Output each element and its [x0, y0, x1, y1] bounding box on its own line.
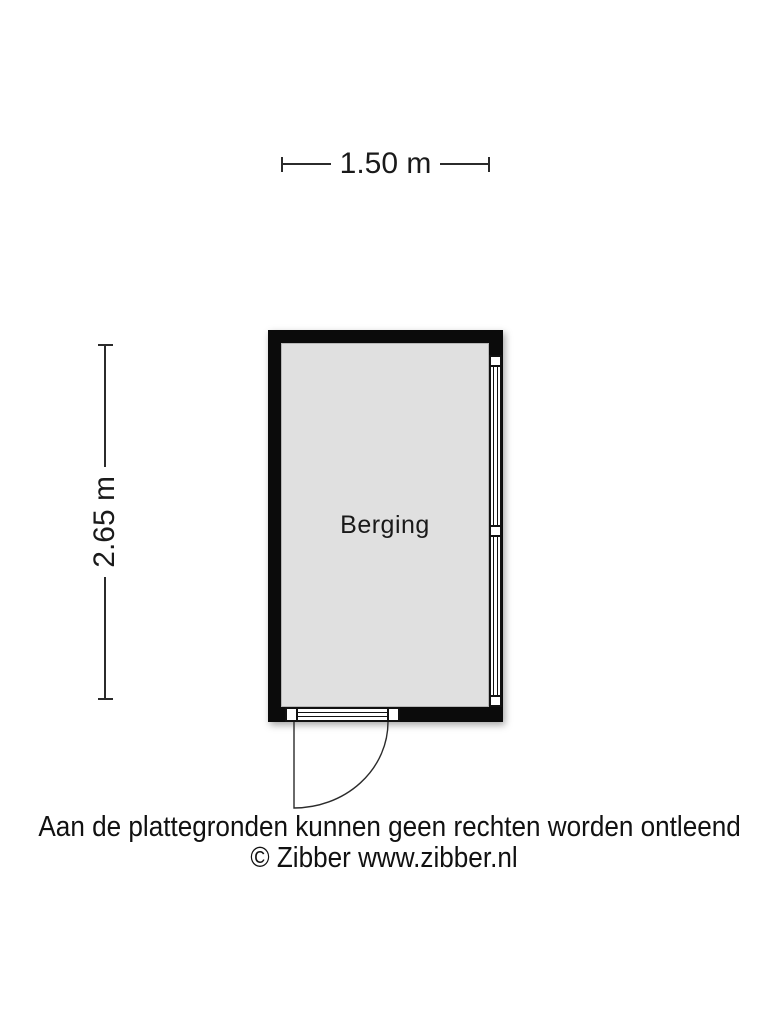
window-frame-divider — [491, 525, 500, 537]
door-frame-post — [285, 707, 298, 722]
dimension-tick-right — [488, 157, 490, 172]
dimension-line-segment — [283, 163, 331, 165]
floorplan-canvas: 1.50 m 2.65 m Berging — [0, 0, 768, 1024]
window-frame-divider — [491, 355, 500, 367]
dimension-width: 1.50 m — [281, 149, 490, 179]
dimension-width-label: 1.50 m — [331, 149, 441, 179]
dimension-tick-bottom — [98, 698, 113, 700]
dimension-line-segment — [440, 163, 488, 165]
copyright-text: © Zibber www.zibber.nl — [38, 843, 729, 874]
window-frame-divider — [491, 695, 500, 707]
door-opening — [285, 707, 400, 722]
dimension-height-label: 2.65 m — [90, 467, 120, 577]
dimension-height: 2.65 m — [90, 344, 120, 700]
door-threshold — [298, 707, 387, 722]
room-label: Berging — [340, 513, 430, 538]
window-right-wall — [489, 355, 502, 707]
room-floor: Berging — [281, 343, 489, 707]
dimension-line-segment — [104, 577, 106, 698]
door-threshold-line — [298, 712, 387, 713]
room-berging: Berging — [268, 330, 503, 722]
door-threshold-line — [298, 716, 387, 717]
door-swing-arc — [293, 722, 390, 811]
footer: Aan de plattegronden kunnen geen rechten… — [38, 812, 729, 874]
disclaimer-text: Aan de plattegronden kunnen geen rechten… — [38, 812, 729, 843]
dimension-line-segment — [104, 346, 106, 467]
door-frame-post — [387, 707, 400, 722]
